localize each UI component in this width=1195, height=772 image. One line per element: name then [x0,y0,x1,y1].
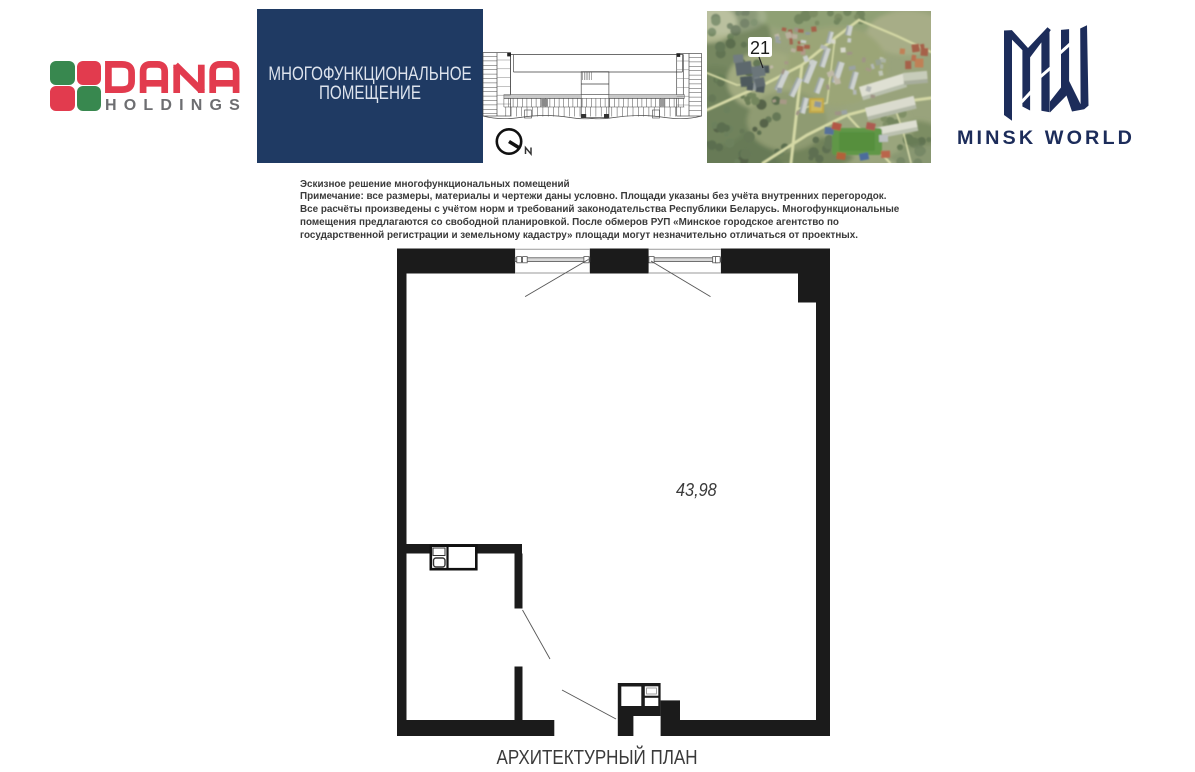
svg-text:21: 21 [750,38,770,58]
svg-text:43,98: 43,98 [676,479,717,500]
